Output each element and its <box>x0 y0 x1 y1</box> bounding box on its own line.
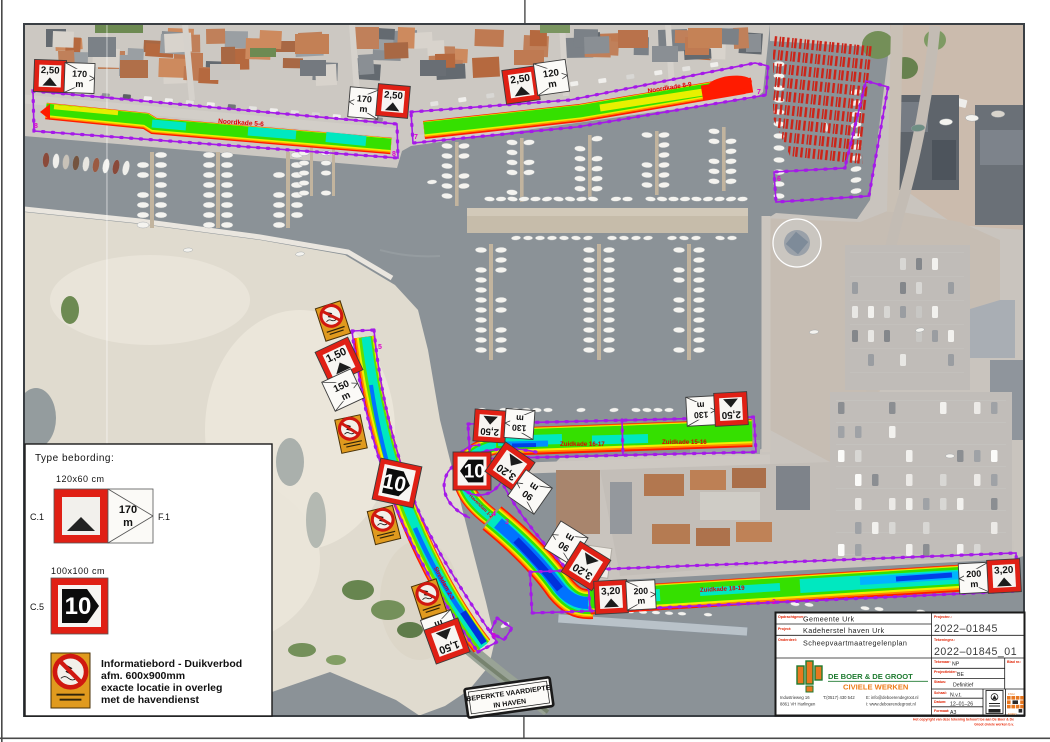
svg-text:200: 200 <box>966 569 982 580</box>
svg-text:Definitief: Definitief <box>953 683 974 689</box>
svg-text:m: m <box>547 78 557 90</box>
svg-text:N.v.t.: N.v.t. <box>950 693 962 699</box>
svg-text:7: 7 <box>757 89 761 96</box>
svg-text:FNGI: FNGI <box>1008 692 1015 696</box>
svg-text:Schaal:: Schaal: <box>934 691 947 695</box>
svg-text:7: 7 <box>414 134 418 141</box>
svg-text:Informatiebord - Duikverbod: Informatiebord - Duikverbod <box>101 658 242 670</box>
svg-text:3: 3 <box>505 519 509 526</box>
svg-text:A3: A3 <box>950 710 956 716</box>
svg-text:Industrieweg 16: Industrieweg 16 <box>780 695 810 700</box>
svg-text:Projectnr.:: Projectnr.: <box>934 615 952 619</box>
svg-text:afm. 600x900mm: afm. 600x900mm <box>101 670 185 682</box>
svg-text:Datum:: Datum: <box>934 700 946 704</box>
svg-text:2,50: 2,50 <box>41 65 60 77</box>
svg-text:Formaat:: Formaat: <box>934 709 949 713</box>
svg-text:3,20: 3,20 <box>601 586 621 598</box>
svg-text:5: 5 <box>378 344 382 351</box>
svg-text:8861 VH Harlingen: 8861 VH Harlingen <box>780 702 816 707</box>
svg-text:m: m <box>359 104 368 115</box>
svg-text:met de havendienst: met de havendienst <box>101 694 200 706</box>
svg-text:Blad nr.:: Blad nr.: <box>1007 660 1021 664</box>
svg-text:Groot civiele werken b.v.: Groot civiele werken b.v. <box>974 723 1014 727</box>
svg-text:Projectleider:: Projectleider: <box>934 670 957 674</box>
svg-text:100x100 cm: 100x100 cm <box>51 566 105 576</box>
svg-text:Status:: Status: <box>934 680 946 684</box>
svg-text:DE BOER & DE GROOT: DE BOER & DE GROOT <box>828 672 913 681</box>
svg-text:m: m <box>75 79 83 89</box>
svg-text:CIVIELE WERKEN: CIVIELE WERKEN <box>843 683 908 692</box>
svg-text:BE: BE <box>957 672 964 678</box>
svg-text:KOMO: KOMO <box>1008 712 1017 716</box>
svg-text:Tekenaar:: Tekenaar: <box>934 660 951 664</box>
svg-text:4: 4 <box>492 511 496 518</box>
svg-text:Tekeningnr.:: Tekeningnr.: <box>934 638 955 642</box>
svg-text:m: m <box>123 517 133 529</box>
svg-text:2,50: 2,50 <box>480 425 499 437</box>
svg-text:E: info@deboerendegroot.nl: E: info@deboerendegroot.nl <box>866 695 919 700</box>
svg-text:m: m <box>515 413 524 424</box>
svg-text:5: 5 <box>492 633 496 640</box>
svg-text:2: 2 <box>772 599 776 606</box>
svg-text:10: 10 <box>381 470 409 497</box>
svg-text:Gemeente Urk: Gemeente Urk <box>803 615 855 624</box>
svg-text:8: 8 <box>34 123 38 130</box>
svg-text:m: m <box>696 400 705 410</box>
svg-text:I: www.deboerendegroot.nl: I: www.deboerendegroot.nl <box>866 702 916 707</box>
svg-text:12–01–26: 12–01–26 <box>950 701 973 707</box>
svg-text:2,50: 2,50 <box>384 90 404 103</box>
svg-text:m: m <box>970 579 979 589</box>
svg-text:Kadeherstel haven Urk: Kadeherstel haven Urk <box>803 626 885 635</box>
svg-text:Het copyright van deze tekenin: Het copyright van deze tekening behoort … <box>913 718 1014 722</box>
svg-text:8: 8 <box>392 151 396 158</box>
svg-text:Opdrachtgever:: Opdrachtgever: <box>778 615 805 619</box>
svg-text:T:(0517) 430 542: T:(0517) 430 542 <box>823 695 855 700</box>
svg-text:Onderdeel:: Onderdeel: <box>778 638 797 642</box>
svg-text:m: m <box>637 595 646 605</box>
svg-text:Zuidkade 16-17: Zuidkade 16-17 <box>560 441 605 448</box>
svg-text:2022–01845: 2022–01845 <box>934 623 998 635</box>
svg-text:Type bebording:: Type bebording: <box>35 453 114 464</box>
svg-text:NP: NP <box>952 662 960 668</box>
svg-text:2022–01845_01: 2022–01845_01 <box>934 646 1017 658</box>
svg-text:10: 10 <box>464 462 485 483</box>
svg-text:6: 6 <box>777 176 781 183</box>
svg-text:Project:: Project: <box>778 627 791 631</box>
svg-text:170: 170 <box>356 93 372 104</box>
svg-text:F.1: F.1 <box>158 512 170 522</box>
svg-text:10: 10 <box>65 593 92 620</box>
svg-text:Zuidkade 15-16: Zuidkade 15-16 <box>662 439 707 446</box>
svg-text:170: 170 <box>119 504 137 516</box>
svg-text:120x60 cm: 120x60 cm <box>56 474 105 484</box>
svg-text:exacte locatie in overleg: exacte locatie in overleg <box>101 682 222 694</box>
svg-text:3,20: 3,20 <box>994 565 1014 577</box>
svg-text:2,50: 2,50 <box>721 408 741 420</box>
svg-text:170: 170 <box>72 69 87 80</box>
svg-text:C.1: C.1 <box>30 512 44 522</box>
svg-text:C.5: C.5 <box>30 602 44 612</box>
svg-text:Scheepvaartmaatregelenplan: Scheepvaartmaatregelenplan <box>803 639 907 648</box>
